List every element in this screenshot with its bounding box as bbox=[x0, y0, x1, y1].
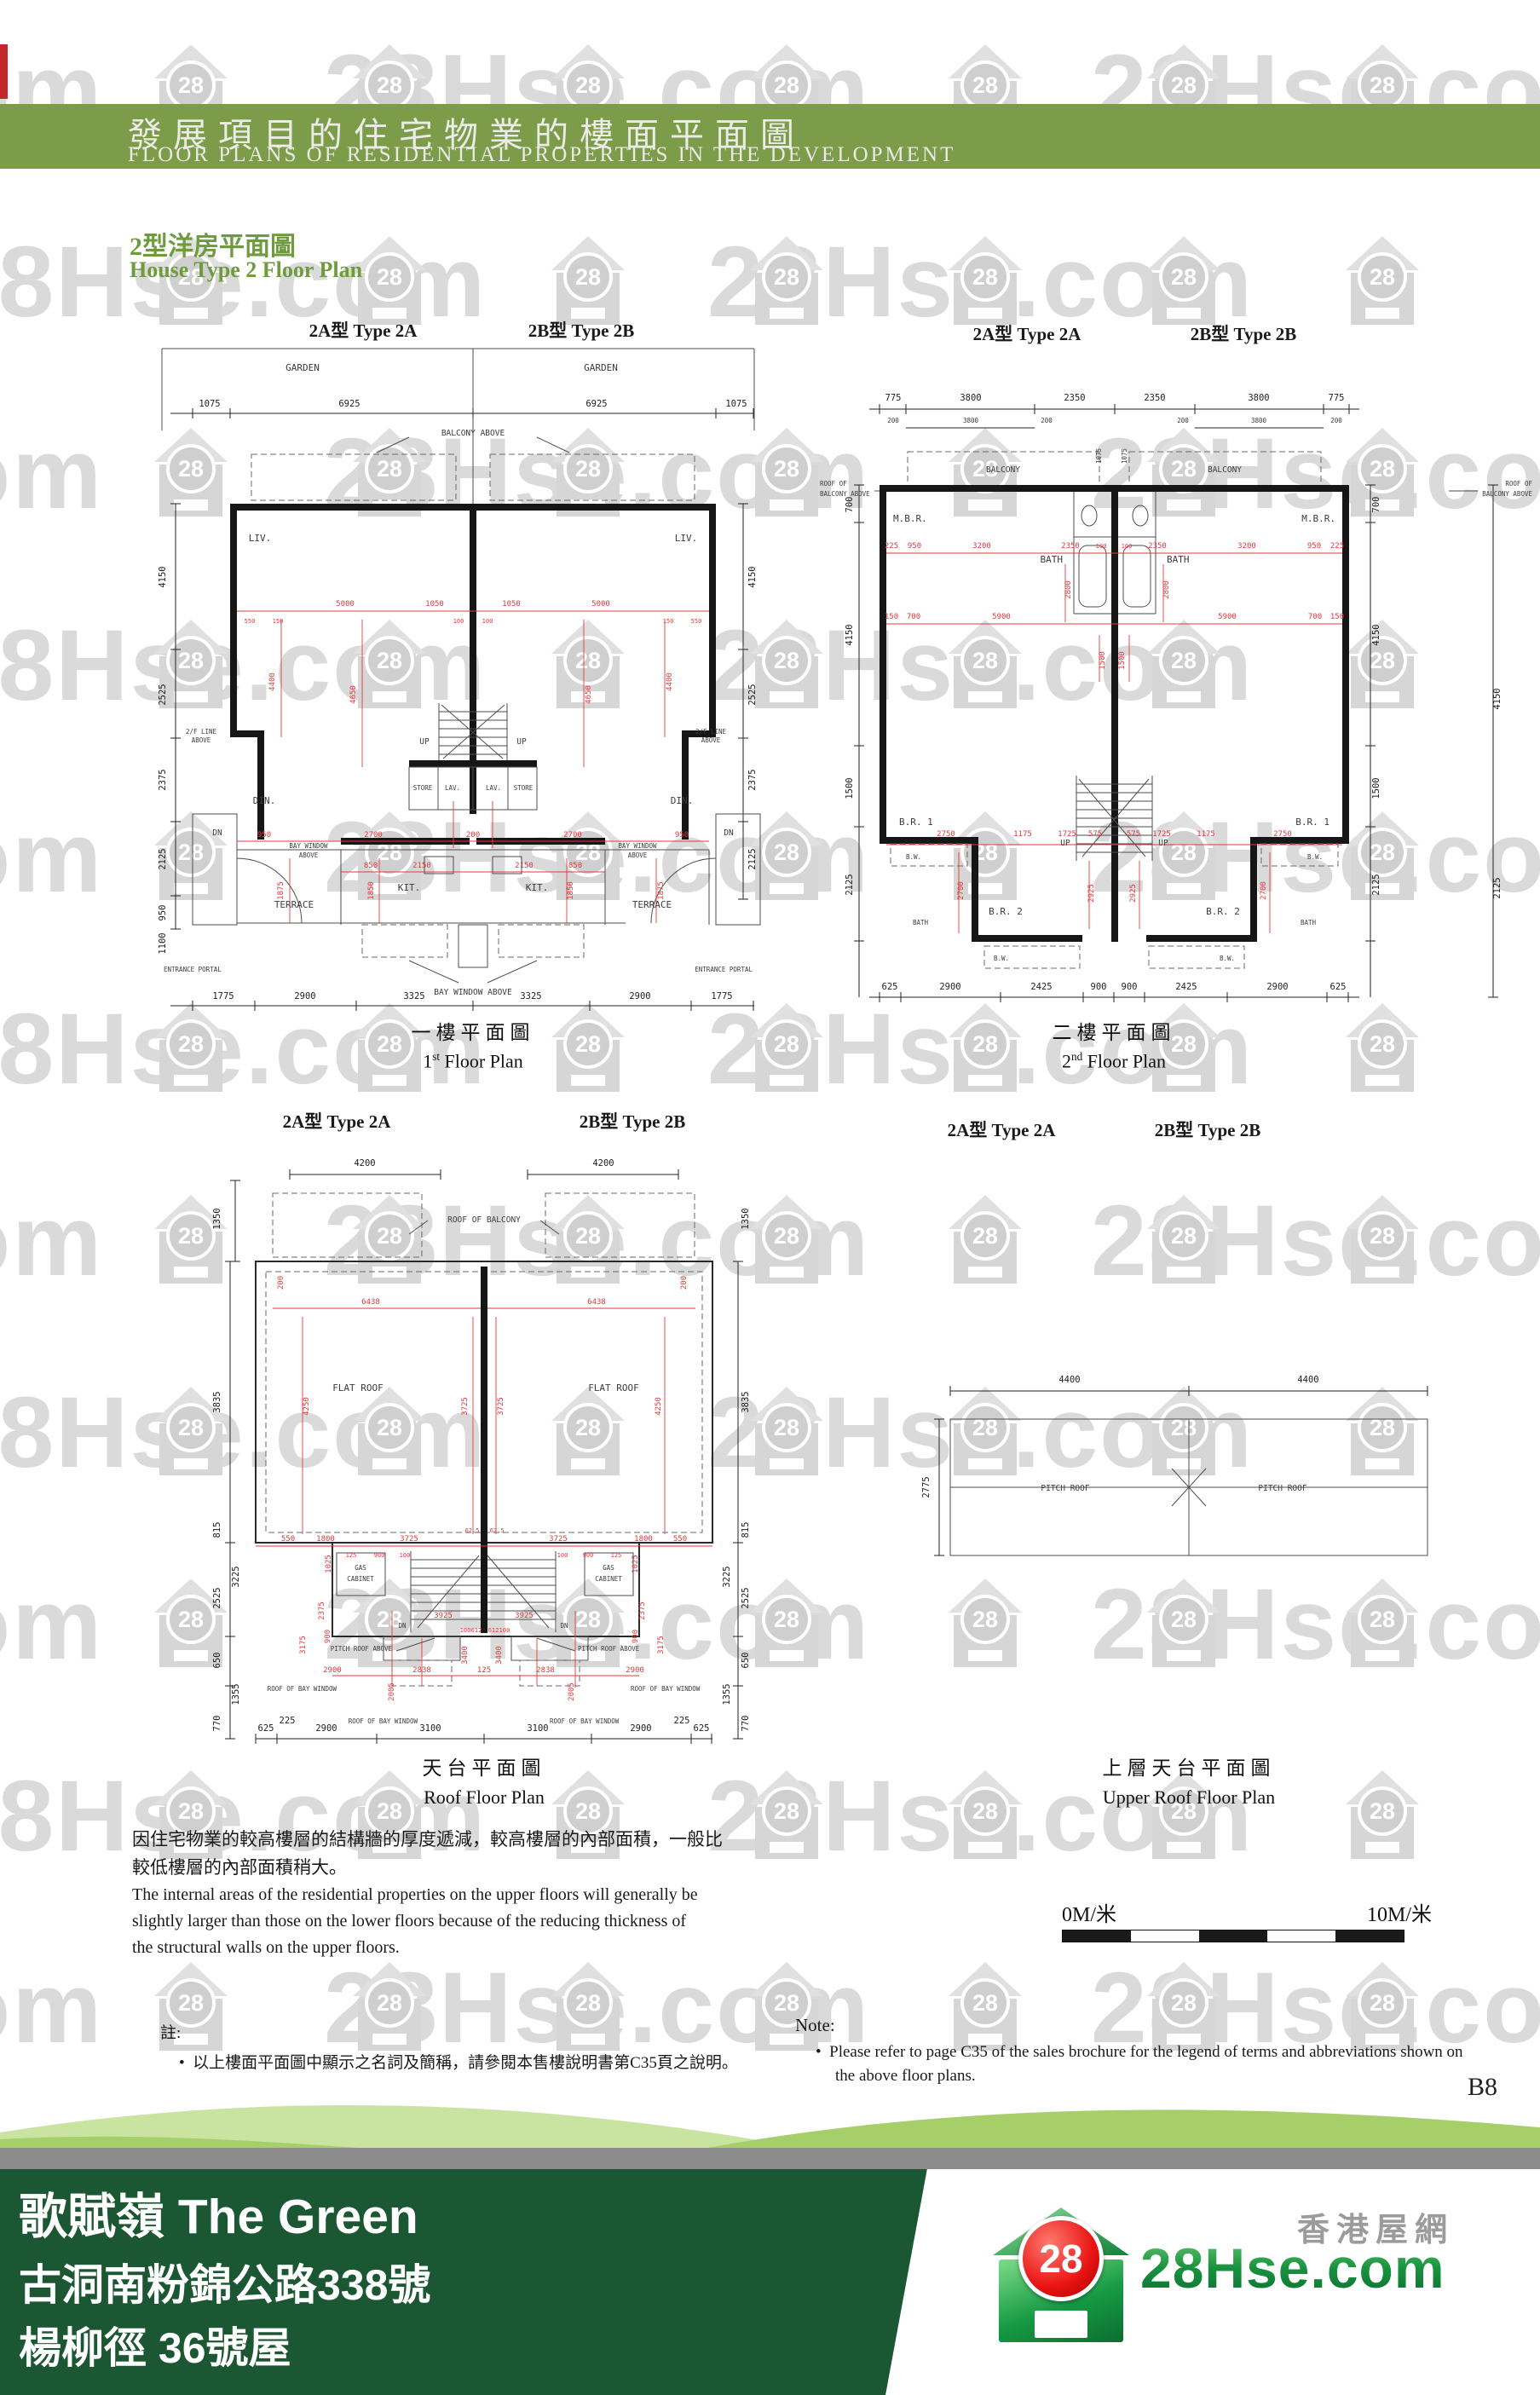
dim-label: 6925 bbox=[585, 399, 607, 409]
note-item: 以上樓面平面圖中顯示之名詞及簡稱，請參閱本售樓說明書第C35頁之說明。 bbox=[193, 2054, 738, 2072]
dim-label: 225 bbox=[280, 1716, 296, 1726]
dim-label: 550 bbox=[245, 618, 256, 625]
dim-label: 100 bbox=[460, 1627, 471, 1634]
dim-label: 62.5 bbox=[490, 1527, 505, 1534]
dim-label: 770 bbox=[212, 1716, 222, 1732]
annotation-label: ABOVE bbox=[192, 736, 211, 744]
watermark-house-icon: 28 bbox=[1147, 236, 1220, 325]
dim-label: 2700 bbox=[957, 881, 966, 900]
dim-label: 1850 bbox=[367, 881, 376, 900]
room-label: B.R. 2 bbox=[1206, 906, 1240, 917]
dim-label: 1175 bbox=[1197, 830, 1215, 839]
scale-label-10: 10M/米 bbox=[1367, 1897, 1432, 1927]
dim-label: 2005 bbox=[568, 1682, 576, 1701]
dim-label: 3325 bbox=[403, 991, 424, 1001]
room-label: CABINET bbox=[347, 1575, 374, 1583]
dim-label: 3100 bbox=[527, 1723, 548, 1734]
room-label: B.R. 1 bbox=[899, 817, 933, 828]
watermark-house-icon: 28 bbox=[750, 1195, 823, 1284]
dim-label: 1800 bbox=[634, 1535, 653, 1544]
annotation-label: BAY WINDOW bbox=[289, 842, 328, 850]
room-label: GAS bbox=[355, 1564, 366, 1572]
room-label: FLAT ROOF bbox=[332, 1382, 384, 1394]
brochure-page: 28Hse.com28Hse.com28Hse.com2828282828282… bbox=[0, 0, 1540, 2395]
note-heading: Note: bbox=[795, 2015, 1463, 2036]
dim-label: 3200 bbox=[1237, 542, 1256, 551]
dim-label: 3925 bbox=[515, 1612, 534, 1620]
note-item: Please refer to page C35 of the sales br… bbox=[829, 2043, 1462, 2061]
dim-label: 200 bbox=[1330, 417, 1342, 424]
dim-label: 1075 bbox=[1121, 448, 1128, 464]
wave-mid-right bbox=[707, 2109, 1540, 2148]
dim-label: 625 bbox=[882, 982, 898, 992]
dim-label: 62.5 bbox=[465, 1527, 480, 1534]
stair-label: DN bbox=[560, 1622, 568, 1630]
room-label: DIN. bbox=[671, 795, 694, 806]
dim-label: 550 bbox=[281, 1535, 295, 1544]
stair-label: UP bbox=[516, 737, 527, 747]
plan-caption-zh: 上層天台平面圖 bbox=[1103, 1752, 1276, 1780]
dim-label: 3175 bbox=[299, 1636, 308, 1654]
dim-label: 125 bbox=[346, 1552, 357, 1559]
dim-label: 900 bbox=[324, 1630, 332, 1643]
dim-label: 700 bbox=[907, 613, 920, 621]
annotation-label: ROOF OF BALCONY bbox=[447, 1215, 521, 1225]
room-label: FLAT ROOF bbox=[588, 1382, 639, 1394]
dim-label: 1025 bbox=[632, 1555, 640, 1573]
dim-label: 625 bbox=[258, 1723, 274, 1734]
dim-label: 815 bbox=[212, 1522, 222, 1538]
watermark-house-icon: 28 bbox=[949, 236, 1022, 325]
dim-label: 1775 bbox=[212, 991, 234, 1001]
note-heading: 註: bbox=[160, 2020, 738, 2043]
annotation-label: ROOF OF BAY WINDOW bbox=[550, 1717, 620, 1725]
room-label: B.R. 1 bbox=[1295, 817, 1329, 828]
room-label: KIT. bbox=[526, 882, 549, 893]
dim-label: 3325 bbox=[520, 991, 541, 1001]
annotation-label: ROOF OF bbox=[1505, 480, 1532, 488]
paragraph-line: The internal areas of the residential pr… bbox=[132, 1882, 780, 1908]
dim-label: 4650 bbox=[349, 685, 358, 704]
watermark-house-icon: 28 bbox=[1147, 1770, 1220, 1859]
plan-caption-zh: 天台平面圖 bbox=[423, 1752, 546, 1780]
dim-label: 1355 bbox=[722, 1683, 732, 1705]
stair-label: UP bbox=[1158, 839, 1168, 848]
dim-label: 1350 bbox=[741, 1208, 751, 1229]
dim-label: 2375 bbox=[158, 769, 168, 790]
dim-label: 225 bbox=[674, 1716, 690, 1726]
room-label: BATH bbox=[1301, 919, 1317, 926]
dim-label: 2150 bbox=[515, 862, 534, 870]
annotation-label: 2/F LINE bbox=[186, 728, 217, 736]
dimension-chains bbox=[854, 404, 1498, 1002]
dim-label: 2375 bbox=[318, 1601, 326, 1620]
dim-label: 1075 bbox=[199, 399, 220, 409]
dim-label: 2375 bbox=[747, 769, 758, 790]
room-label: DIN. bbox=[253, 795, 276, 806]
room-label: LIV. bbox=[675, 533, 698, 544]
dim-label: 2750 bbox=[937, 830, 955, 839]
development-unit: 楊柳徑 36號屋 bbox=[19, 2314, 291, 2375]
dim-label: 200 bbox=[277, 1276, 286, 1290]
annotation-label: ROOF OF bbox=[820, 480, 847, 488]
annotation-label: ABOVE bbox=[628, 851, 648, 859]
dim-label: 3400 bbox=[461, 1646, 470, 1665]
room-label: KIT. bbox=[398, 882, 421, 893]
dim-label: 2350 bbox=[1061, 542, 1080, 551]
dim-label: 4250 bbox=[303, 1397, 311, 1416]
room-label: PITCH ROOF bbox=[1041, 1484, 1089, 1493]
plan-caption-en: 2nd Floor Plan bbox=[1062, 1050, 1166, 1072]
dim-label: 100 bbox=[400, 1552, 411, 1559]
dim-label: 900 bbox=[583, 1552, 594, 1559]
type-label-2b: 2B型 Type 2B bbox=[580, 1108, 685, 1134]
dim-label: 700 bbox=[1371, 497, 1381, 513]
room-label: M.B.R. bbox=[1301, 513, 1335, 524]
room-label: B.R. 2 bbox=[989, 906, 1023, 917]
dim-label: 775 bbox=[1329, 393, 1345, 403]
dim-label: 6438 bbox=[587, 1298, 606, 1307]
dim-label: 2350 bbox=[1144, 393, 1165, 403]
dimension-chains bbox=[934, 1386, 1428, 1555]
dim-label: 2775 bbox=[921, 1476, 931, 1498]
plan-caption-en: 1st Floor Plan bbox=[423, 1050, 523, 1072]
dim-label: 2838 bbox=[412, 1666, 431, 1675]
dim-label: 150 bbox=[663, 618, 674, 625]
dim-label: 900 bbox=[374, 1552, 385, 1559]
dim-label: 5900 bbox=[1218, 613, 1237, 621]
dim-label: 2375 bbox=[638, 1601, 647, 1620]
dim-label: 200 bbox=[466, 831, 480, 840]
annotation-label: BALCONY ABOVE bbox=[441, 429, 505, 438]
dim-label: 1350 bbox=[212, 1208, 222, 1229]
dim-label: 650 bbox=[212, 1653, 222, 1669]
room-label: PITCH ROOF bbox=[1258, 1484, 1306, 1493]
dim-label: 3200 bbox=[972, 542, 991, 551]
logo-28-badge: 28 bbox=[1018, 2216, 1104, 2301]
first-floor-plan: GARDEN GARDEN 1075 6925 6925 1075 BALCON… bbox=[153, 337, 763, 1078]
site-lines bbox=[162, 349, 754, 504]
annotation-label: ROOF OF BAY WINDOW bbox=[268, 1685, 337, 1693]
watermark-text: 28Hse.com bbox=[0, 1950, 103, 2066]
room-label: CABINET bbox=[595, 1575, 622, 1583]
dim-label: 850 bbox=[568, 862, 582, 870]
scale-bar-graphic bbox=[1062, 1930, 1404, 1942]
edge-watermark-fragment bbox=[0, 44, 8, 99]
dim-label: 200 bbox=[1177, 417, 1189, 424]
annotation-label: B.W. bbox=[1220, 955, 1235, 962]
dim-label: 2525 bbox=[212, 1587, 222, 1608]
watermark-house-icon: 28 bbox=[949, 1770, 1022, 1859]
dim-label: 150 bbox=[885, 613, 898, 621]
dim-label: 2125 bbox=[845, 874, 855, 895]
dim-label: 1500 bbox=[845, 777, 855, 799]
explanatory-paragraph: 因住宅物業的較高樓層的結構牆的厚度遞減，較高樓層的內部面積，一般比 較低樓層的內… bbox=[132, 1826, 780, 1961]
dim-label: 2900 bbox=[626, 1666, 644, 1675]
scale-bar: 0M/米 10M/米 bbox=[1062, 1897, 1428, 1945]
roof-floor-plan: 4200 4200 ROOF OF BALCONY FLAT ROOF FLAT… bbox=[128, 1134, 758, 1747]
paragraph-line: 較低樓層的內部面積稍大。 bbox=[132, 1854, 780, 1882]
watermark-text: 28Hse.com bbox=[0, 1183, 103, 1299]
dim-label: 3835 bbox=[212, 1391, 222, 1412]
dim-label: 6438 bbox=[361, 1298, 380, 1307]
room-label: BALCONY bbox=[986, 465, 1020, 475]
type-label-2a: 2A型 Type 2A bbox=[283, 1108, 391, 1134]
type-label-2a: 2A型 Type 2A bbox=[948, 1117, 1056, 1142]
page-title-en: FLOOR PLANS OF RESIDENTIAL PROPERTIES IN… bbox=[128, 143, 955, 167]
dim-label: 770 bbox=[741, 1716, 751, 1732]
watermark-house-icon: 28 bbox=[750, 236, 823, 325]
watermark-text: 28Hse.com bbox=[0, 799, 103, 915]
dim-label: 850 bbox=[364, 862, 378, 870]
annotation-label: ENTRANCE PORTAL bbox=[695, 966, 753, 973]
dim-label: 4250 bbox=[655, 1397, 663, 1416]
dim-label: 3800 bbox=[963, 417, 979, 424]
dim-label: 2700 bbox=[563, 831, 582, 840]
dim-label: 3725 bbox=[549, 1535, 568, 1544]
dim-label: 1875 bbox=[277, 881, 286, 900]
stair-label: UP bbox=[1060, 839, 1070, 848]
dim-label: 700 bbox=[845, 497, 855, 513]
dim-label: 1775 bbox=[711, 991, 732, 1001]
watermark-text: 28Hse.com bbox=[0, 1567, 103, 1682]
dim-label: 1075 bbox=[725, 399, 747, 409]
dim-label: 4200 bbox=[354, 1158, 375, 1169]
dim-label: 900 bbox=[632, 1630, 640, 1643]
room-label: GARDEN bbox=[584, 362, 618, 373]
dim-label: 2800 bbox=[1162, 580, 1171, 599]
dim-label: 2750 bbox=[1273, 830, 1292, 839]
dim-label: 2900 bbox=[1266, 982, 1288, 992]
dim-label: 550 bbox=[673, 1535, 687, 1544]
dim-label: 1050 bbox=[425, 600, 444, 609]
dim-label: 6925 bbox=[338, 399, 360, 409]
dim-label: 150 bbox=[1330, 613, 1344, 621]
dim-label: 4400 bbox=[268, 672, 277, 691]
site-lines bbox=[273, 1193, 695, 1257]
annotation-label: ENTRANCE PORTAL bbox=[164, 966, 222, 973]
dim-label: 612 bbox=[488, 1627, 499, 1634]
dim-label: 950 bbox=[675, 831, 689, 840]
annotation-label: ROOF OF BAY WINDOW bbox=[631, 1685, 701, 1693]
dim-label: 1850 bbox=[567, 881, 575, 900]
dim-label: 2125 bbox=[747, 848, 758, 869]
dim-label: 3725 bbox=[497, 1397, 505, 1416]
dim-label: 2800 bbox=[1064, 580, 1073, 599]
dim-label: 900 bbox=[1091, 982, 1107, 992]
paragraph-line: 因住宅物業的較高樓層的結構牆的厚度遞減，較高樓層的內部面積，一般比 bbox=[132, 1826, 780, 1854]
dim-label: 3100 bbox=[419, 1723, 441, 1734]
dim-label: 950 bbox=[908, 542, 921, 551]
dim-label: 3835 bbox=[741, 1391, 751, 1412]
room-label: LAV. bbox=[445, 784, 460, 792]
dim-label: 100 bbox=[453, 618, 464, 625]
dim-label: 2838 bbox=[536, 1666, 555, 1675]
dim-label: 225 bbox=[1330, 542, 1344, 551]
dim-label: 2900 bbox=[323, 1666, 342, 1675]
room-label: LAV. bbox=[486, 784, 501, 792]
plan-caption-en: Roof Floor Plan bbox=[424, 1786, 545, 1809]
dim-label: 1025 bbox=[325, 1555, 333, 1573]
dim-label: 2900 bbox=[315, 1723, 337, 1734]
paragraph-line: slightly larger than those on the lower … bbox=[132, 1908, 780, 1935]
dim-label: 3225 bbox=[231, 1566, 241, 1587]
dim-label: 2925 bbox=[1129, 884, 1138, 903]
room-label: GAS bbox=[603, 1564, 614, 1572]
type-label-2b: 2B型 Type 2B bbox=[1191, 320, 1296, 346]
dim-label: 1725 bbox=[1152, 830, 1171, 839]
room-label: STORE bbox=[514, 784, 534, 792]
stair-label: DN bbox=[212, 828, 222, 838]
dim-label: 2425 bbox=[1030, 982, 1052, 992]
note-item: the above floor plans. bbox=[835, 2067, 1463, 2086]
stair-label: DN bbox=[724, 828, 734, 838]
dim-label: 5000 bbox=[336, 600, 355, 609]
dim-label: 125 bbox=[477, 1666, 491, 1675]
dim-label: 4150 bbox=[158, 566, 168, 587]
second-floor-plan: 775 3800 2350 2350 3800 775 200 3800 200… bbox=[818, 366, 1534, 1091]
dim-label: 815 bbox=[741, 1522, 751, 1538]
dim-label: 900 bbox=[1122, 982, 1138, 992]
gray-band bbox=[0, 2148, 1540, 2169]
decorative-waves bbox=[0, 2090, 1540, 2169]
dim-label: 1875 bbox=[657, 881, 666, 900]
dim-label: 1800 bbox=[316, 1535, 335, 1544]
watermark-house-icon: 28 bbox=[1346, 1770, 1419, 1859]
dim-label: 4200 bbox=[592, 1158, 614, 1169]
paragraph-line: the structural walls on the upper floors… bbox=[132, 1935, 780, 1961]
dim-label: 3725 bbox=[400, 1535, 418, 1544]
dim-label: 775 bbox=[885, 393, 902, 403]
dim-label: 3800 bbox=[960, 393, 981, 403]
dim-label: 2900 bbox=[939, 982, 960, 992]
dim-label: 2150 bbox=[412, 862, 431, 870]
dim-label: 4400 bbox=[666, 672, 674, 691]
dim-label: 2125 bbox=[1371, 874, 1381, 895]
dim-label: 225 bbox=[885, 542, 898, 551]
watermark-house-icon: 28 bbox=[353, 236, 426, 325]
room-label: TERRACE bbox=[274, 899, 314, 910]
annotation-label: BAY WINDOW bbox=[618, 842, 657, 850]
dim-label: 2525 bbox=[741, 1587, 751, 1608]
dim-label: 4650 bbox=[585, 685, 593, 704]
dim-label: 2425 bbox=[1175, 982, 1197, 992]
dim-label: 1175 bbox=[1013, 830, 1032, 839]
dim-label: 575 bbox=[1127, 830, 1140, 839]
dim-label: 2005 bbox=[388, 1682, 396, 1701]
watermark-house-icon: 28 bbox=[551, 236, 625, 325]
dim-label: 2700 bbox=[1260, 881, 1268, 900]
dim-label: 100 bbox=[1096, 543, 1107, 550]
dim-label: 2125 bbox=[1492, 877, 1503, 898]
scale-label-0: 0M/米 bbox=[1062, 1897, 1116, 1927]
logo-door bbox=[1035, 2311, 1087, 2338]
dim-label: 3800 bbox=[1248, 393, 1269, 403]
note-en: Note: • Please refer to page C35 of the … bbox=[795, 2015, 1463, 2086]
plan-caption-en: Upper Roof Floor Plan bbox=[1103, 1786, 1275, 1809]
room-label: BATH bbox=[913, 919, 929, 926]
development-address: 古洞南粉錦公路338號 bbox=[19, 2251, 430, 2312]
dim-label: 1500 bbox=[1371, 777, 1381, 799]
dim-label: 100 bbox=[1122, 543, 1133, 550]
dim-label: 1050 bbox=[502, 600, 521, 609]
dim-label: 3175 bbox=[657, 1636, 666, 1654]
room-label: M.B.R. bbox=[893, 513, 927, 524]
dim-label: 100 bbox=[557, 1552, 568, 1559]
dim-label: 3925 bbox=[434, 1612, 453, 1620]
dim-label: 2525 bbox=[158, 684, 168, 705]
dim-label: 2525 bbox=[747, 684, 758, 705]
dim-label: 950 bbox=[1307, 542, 1321, 551]
dim-label: 200 bbox=[680, 1276, 689, 1290]
dim-label: 700 bbox=[1308, 613, 1322, 621]
dim-label: 1500 bbox=[1118, 651, 1127, 670]
dim-label: 4400 bbox=[1058, 1375, 1080, 1385]
annotation-label: BALCONY ABOVE bbox=[1482, 490, 1532, 498]
watermark-house-icon: 28 bbox=[750, 1387, 823, 1475]
dim-label: 950 bbox=[158, 905, 168, 921]
footer: 歌賦嶺 The Green 古洞南粉錦公路338號 楊柳徑 36號屋 28 28… bbox=[0, 2169, 1540, 2395]
dim-label: 625 bbox=[1330, 982, 1347, 992]
dim-label: 2925 bbox=[1087, 884, 1096, 903]
dim-label: 950 bbox=[257, 831, 271, 840]
28hse-logo-house-icon: 28 bbox=[993, 2207, 1129, 2342]
dim-label: 4400 bbox=[1297, 1375, 1318, 1385]
dim-label: 4150 bbox=[845, 624, 855, 645]
dim-label: 125 bbox=[611, 1552, 622, 1559]
watermark-house-icon: 28 bbox=[1147, 1195, 1220, 1284]
plan-caption-zh: 一樓平面圖 bbox=[412, 1016, 535, 1045]
dim-label: 550 bbox=[691, 618, 702, 625]
dim-label: 4150 bbox=[1371, 624, 1381, 645]
room-label: LIV. bbox=[249, 533, 272, 544]
annotation-label: ABOVE bbox=[299, 851, 319, 859]
dim-label: 625 bbox=[694, 1723, 710, 1734]
watermark-text: 28Hse.com bbox=[1091, 1183, 1540, 1299]
room-label: BALCONY bbox=[1208, 465, 1242, 475]
room-label: STORE bbox=[413, 784, 433, 792]
dim-label: 1355 bbox=[231, 1683, 241, 1705]
28hse-tagline: 香港屋網 bbox=[1297, 2203, 1454, 2250]
dim-label: 5900 bbox=[992, 613, 1011, 621]
dim-label: 1075 bbox=[1095, 448, 1103, 464]
section-subtitle-en: House Type 2 Floor Plan bbox=[130, 257, 362, 283]
dim-label: 612 bbox=[471, 1627, 482, 1634]
stair-label: UP bbox=[419, 737, 430, 747]
dim-label: 2350 bbox=[1148, 542, 1167, 551]
dim-label: 2125 bbox=[158, 848, 168, 869]
watermark-house-icon: 28 bbox=[949, 1195, 1022, 1284]
dim-label: 1100 bbox=[158, 932, 168, 954]
dim-label: 650 bbox=[741, 1653, 751, 1669]
dim-label: 200 bbox=[887, 417, 899, 424]
dim-label: 3800 bbox=[1251, 417, 1267, 424]
annotation-label: PITCH ROOF ABOVE bbox=[331, 1645, 393, 1653]
dim-label: 100 bbox=[482, 618, 493, 625]
annotation-label: ABOVE bbox=[701, 736, 721, 744]
dim-label: 3400 bbox=[495, 1646, 504, 1665]
dim-label: 4150 bbox=[747, 566, 758, 587]
room-label: BATH bbox=[1167, 554, 1190, 565]
dim-label: 100 bbox=[499, 1627, 510, 1634]
dim-label: 1500 bbox=[1099, 651, 1107, 670]
outline bbox=[950, 1419, 1428, 1555]
annotation-label: B.W. bbox=[994, 955, 1009, 962]
watermark-house-icon: 28 bbox=[1346, 236, 1419, 325]
dim-label: 150 bbox=[273, 618, 284, 625]
dim-label: 5000 bbox=[591, 600, 610, 609]
dim-label: 1725 bbox=[1058, 830, 1076, 839]
